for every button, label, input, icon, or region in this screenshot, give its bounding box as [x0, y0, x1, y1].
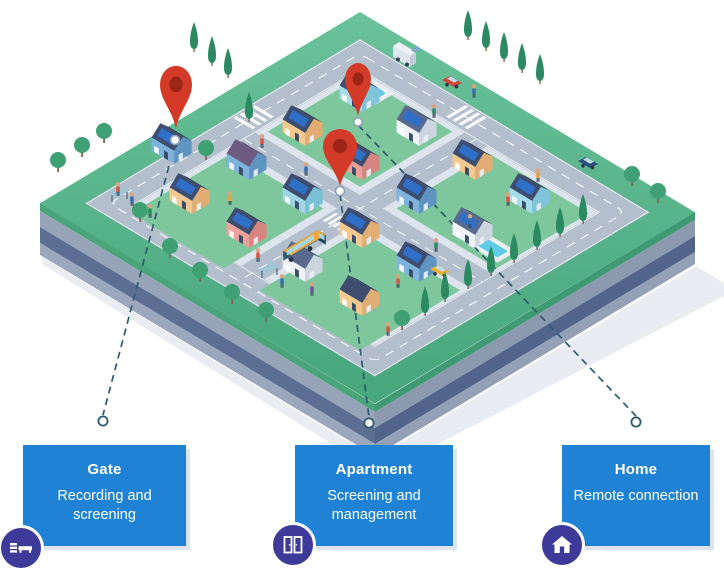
home-icon — [539, 522, 585, 568]
connector-endpoint-home — [631, 417, 640, 426]
apartment-icon — [270, 522, 316, 568]
card-gate-title: Gate — [31, 461, 178, 478]
card-home-title: Home — [570, 461, 702, 478]
connector-endpoint-gate — [98, 416, 107, 425]
card-apartment-description: Screening and management — [303, 487, 445, 525]
infographic-stage: Gate Recording and screening Apartment S… — [0, 0, 724, 576]
card-apartment-title: Apartment — [303, 461, 445, 478]
card-gate-description: Recording and screening — [31, 487, 178, 525]
card-gate[interactable]: Gate Recording and screening — [23, 445, 186, 546]
connector-endpoints — [98, 416, 640, 427]
card-home[interactable]: Home Remote connection — [562, 445, 710, 546]
gate-icon — [0, 525, 44, 571]
card-home-description: Remote connection — [570, 487, 702, 506]
connector-endpoint-apartment — [364, 418, 373, 427]
card-apartment[interactable]: Apartment Screening and management — [295, 445, 453, 546]
